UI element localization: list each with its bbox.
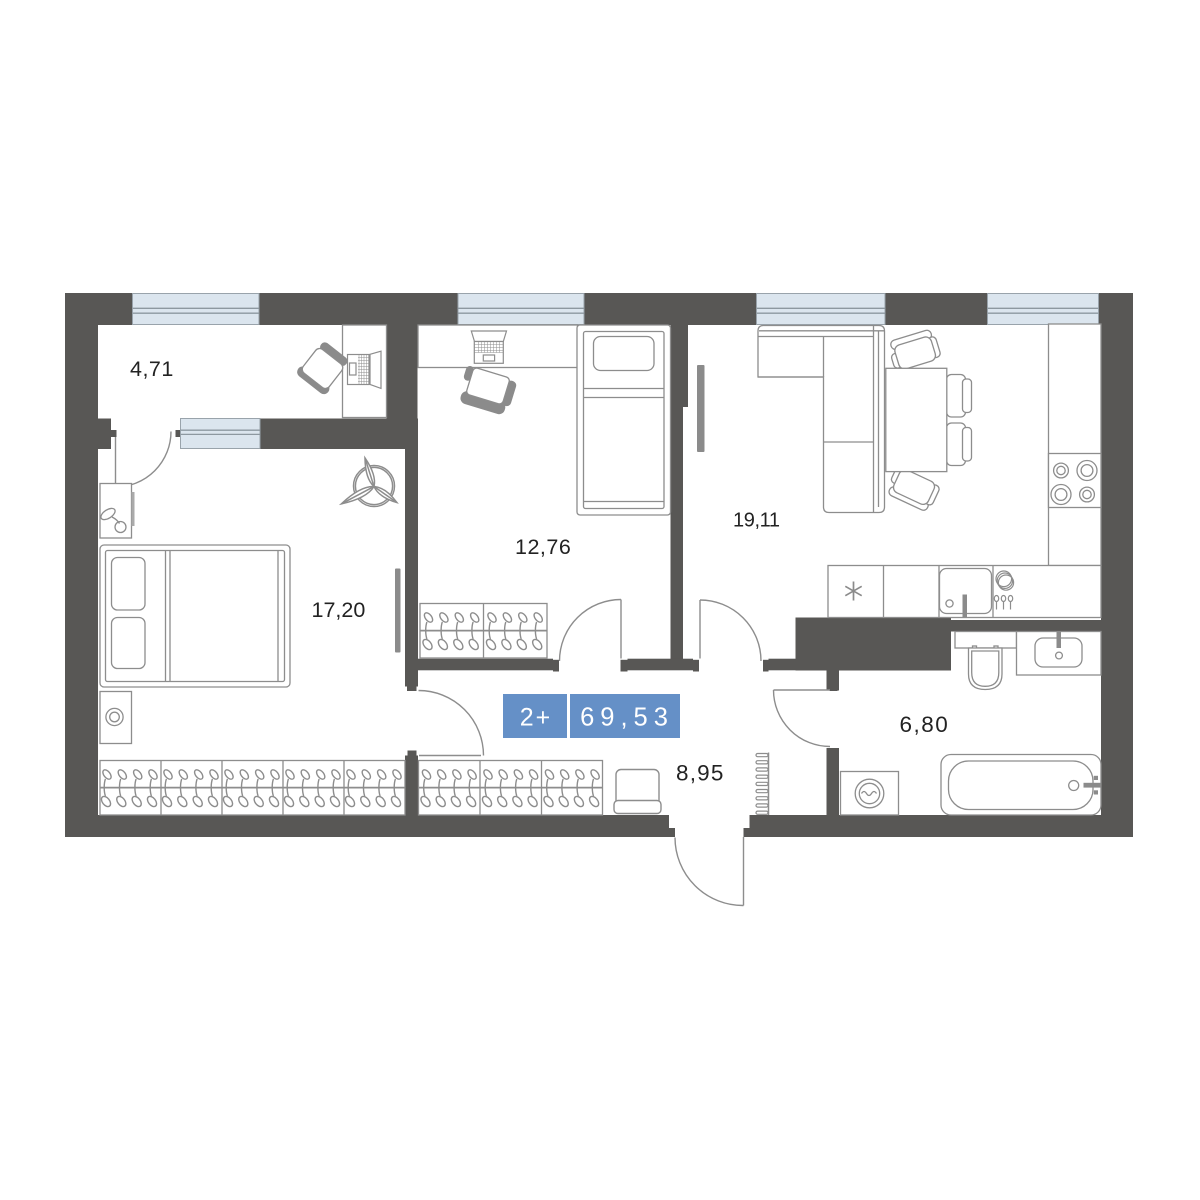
svg-text:6,80: 6,80 [900, 712, 950, 737]
svg-text:19,11: 19,11 [733, 510, 780, 532]
svg-text:8,95: 8,95 [676, 761, 725, 786]
svg-text:4,71: 4,71 [130, 357, 174, 381]
svg-text:2+: 2+ [520, 704, 553, 732]
svg-text:12,76: 12,76 [515, 535, 571, 559]
svg-text:69,53: 69,53 [580, 704, 674, 732]
svg-text:17,20: 17,20 [312, 598, 366, 622]
